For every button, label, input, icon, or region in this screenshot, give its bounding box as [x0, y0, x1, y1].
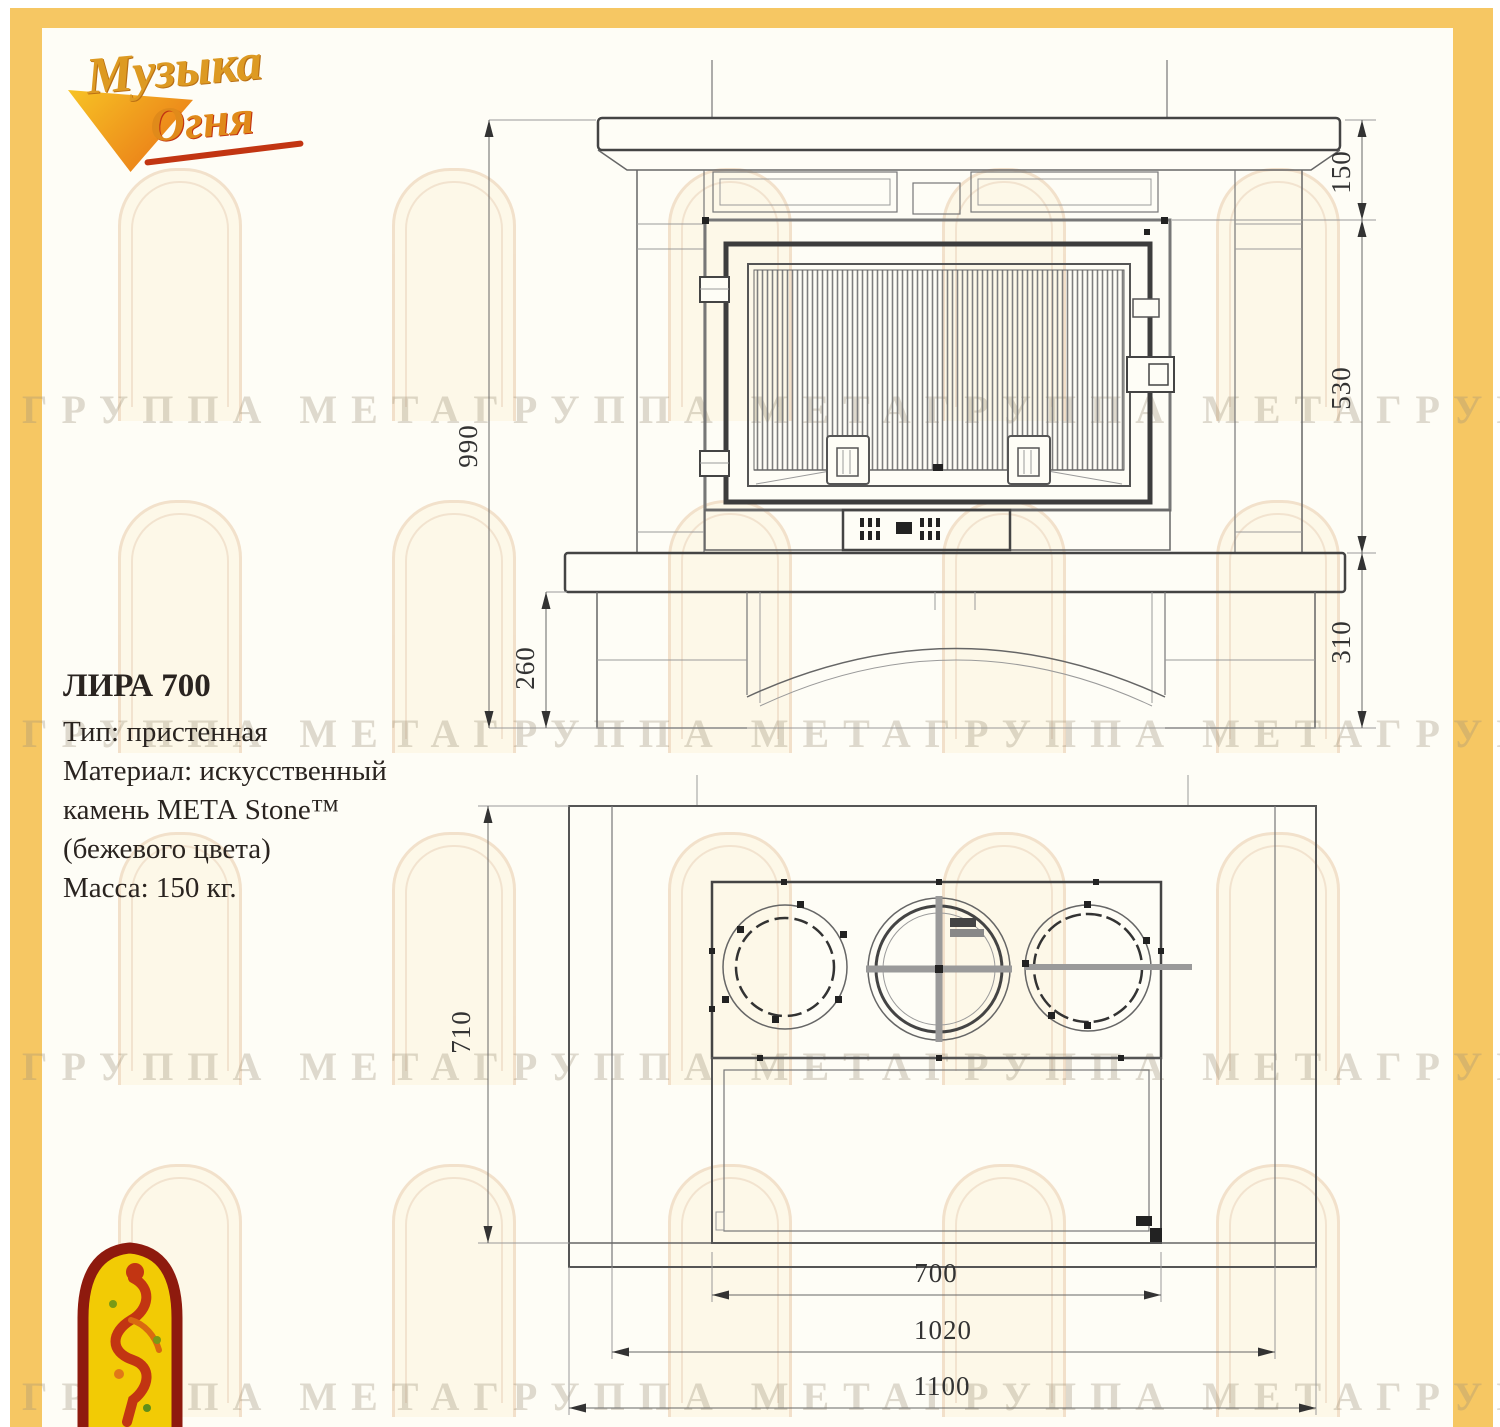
top-view — [569, 806, 1316, 1267]
spec-line: Масса: 150 кг. — [63, 869, 483, 908]
front-view — [489, 60, 1362, 806]
flame-dancer-icon — [75, 1240, 185, 1427]
dim-depth: 710 — [446, 1010, 476, 1054]
vent-slots — [860, 518, 940, 540]
dim-hearth-height: 310 — [1326, 620, 1356, 664]
base-arch — [489, 592, 1362, 728]
spec-model: ЛИРА 700 — [63, 668, 483, 705]
top-view-dimensions: 710 700 1020 1100 — [446, 806, 1316, 1415]
flue-circle-right — [1022, 901, 1192, 1031]
brand-logo: Музыка Огня — [58, 38, 328, 188]
logo-text-line2: Огня — [148, 90, 256, 154]
spec-sheet-page: ГРУППА МЕТАГРУППА МЕТАГРУППА МЕТАГРУППА … — [0, 0, 1500, 1427]
dim-middle-width: 1020 — [914, 1315, 972, 1345]
spec-line: камень МЕТА Stone™ — [63, 791, 483, 830]
dim-outer-width: 1100 — [914, 1371, 971, 1401]
dim-base-height: 260 — [510, 646, 540, 690]
spec-line: Тип: пристенная — [63, 713, 483, 752]
flue-circle-center — [866, 896, 1012, 1042]
flue-circle-left — [722, 901, 847, 1029]
firebox — [700, 217, 1174, 510]
dim-inner-width: 700 — [914, 1258, 958, 1288]
spec-block: ЛИРА 700 Тип: пристенная Материал: искус… — [63, 668, 483, 908]
dim-total-height: 990 — [453, 424, 483, 468]
dim-mantel-height: 150 — [1326, 150, 1356, 194]
spec-line: Материал: искусственный — [63, 752, 483, 791]
spec-line: (бежевого цвета) — [63, 830, 483, 869]
bottom-emblem — [75, 1240, 190, 1427]
dim-firebox-height: 530 — [1326, 366, 1356, 410]
